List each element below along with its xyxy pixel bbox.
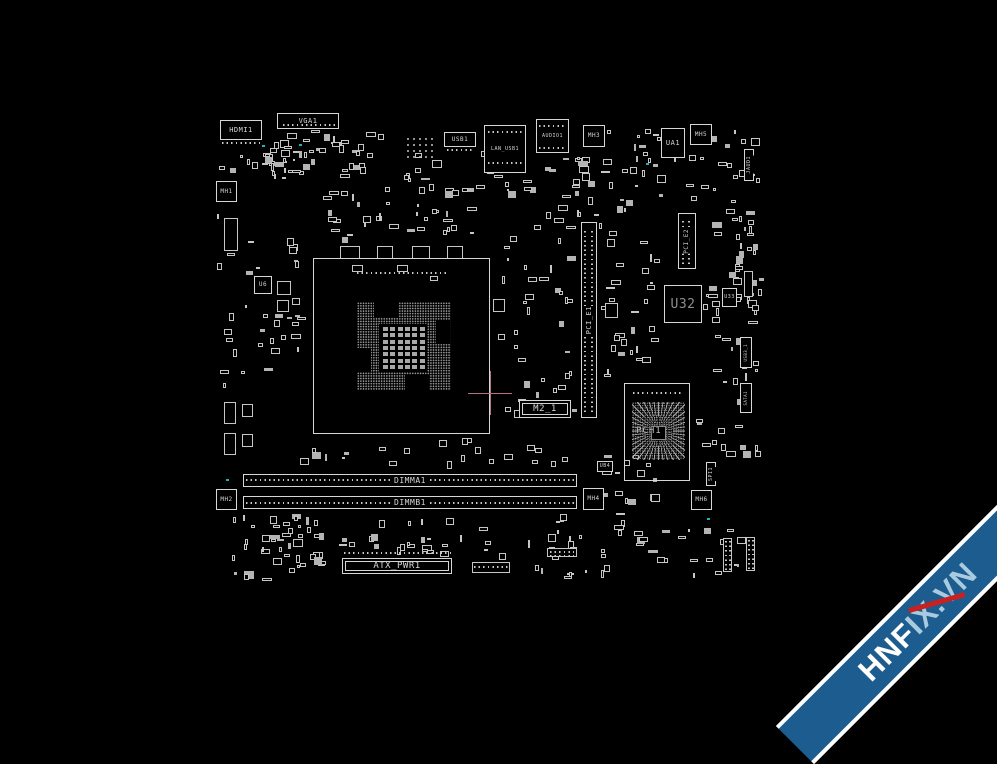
smd-part xyxy=(700,157,704,160)
smd-part xyxy=(244,574,249,580)
cpu-socket-capacitor xyxy=(398,340,403,344)
smd-part xyxy=(331,229,340,232)
smd-part xyxy=(295,261,299,268)
smd-part xyxy=(332,142,340,147)
smd-part xyxy=(252,162,258,169)
net-highlight-marker xyxy=(226,479,229,481)
smd-part xyxy=(447,461,452,469)
smd-part xyxy=(735,266,743,270)
smd-part xyxy=(616,263,624,267)
m2-1-connector: M2_1 xyxy=(519,400,571,418)
smd-part xyxy=(227,253,235,256)
smd-part xyxy=(572,409,577,412)
smd-part xyxy=(284,146,292,149)
pci-e2-slot-label: PCI_E2 xyxy=(682,229,692,254)
smd-part xyxy=(649,326,655,332)
smd-part xyxy=(569,371,572,376)
pin-row xyxy=(539,147,566,149)
smd-part xyxy=(445,191,453,198)
smd-part xyxy=(753,250,756,255)
smd-part xyxy=(312,452,321,459)
smd-part xyxy=(650,254,652,262)
smd-part xyxy=(297,347,299,352)
smd-part xyxy=(277,539,284,541)
smd-part xyxy=(281,150,290,157)
smd-part xyxy=(726,451,736,457)
cpu-socket-capacitor xyxy=(390,340,395,344)
smd-part xyxy=(628,499,636,505)
smd-part xyxy=(303,139,310,142)
mounting-hole-mh4: MH4 xyxy=(583,488,604,510)
cpu-socket-capacitor xyxy=(412,365,417,369)
smd-part xyxy=(579,535,582,539)
pin-row xyxy=(633,392,683,394)
smd-part xyxy=(298,525,301,528)
smd-part xyxy=(559,291,563,295)
smd-part xyxy=(439,440,447,447)
smd-part xyxy=(622,169,628,173)
smd-part xyxy=(572,185,580,188)
smd-part xyxy=(585,570,587,573)
smd-part xyxy=(312,448,316,453)
pin-row xyxy=(729,541,731,570)
pin-row xyxy=(474,566,508,568)
smd-part xyxy=(379,213,381,220)
smd-part xyxy=(371,534,378,541)
smd-part xyxy=(241,371,245,374)
smd-part xyxy=(594,214,599,216)
smd-part xyxy=(553,388,557,393)
smd-part xyxy=(407,542,410,546)
smd-part xyxy=(366,132,376,137)
smd-part xyxy=(704,528,711,534)
cpu-socket-capacitor xyxy=(412,327,417,331)
smd-part xyxy=(607,130,611,134)
smd-part xyxy=(421,178,430,180)
smd-part xyxy=(421,537,425,543)
smd-part xyxy=(579,166,589,173)
smd-part xyxy=(626,200,633,206)
smd-part xyxy=(753,361,759,366)
chip-u33-label: U33 xyxy=(722,295,737,300)
spi1-header: SPI1 xyxy=(706,462,716,486)
smd-part xyxy=(505,182,509,187)
smd-part xyxy=(713,369,722,372)
net-highlight-marker xyxy=(707,518,710,520)
smd-part xyxy=(358,144,364,151)
cpu-socket-capacitor xyxy=(405,346,410,350)
smd-part xyxy=(617,206,623,213)
smd-part xyxy=(514,345,518,349)
smd-part xyxy=(296,555,300,563)
smd-part xyxy=(741,139,746,144)
smd-part xyxy=(518,358,526,362)
smd-part xyxy=(340,174,350,178)
smd-part xyxy=(243,515,245,521)
smd-part xyxy=(297,565,300,568)
component-outline xyxy=(242,434,253,447)
smd-part xyxy=(748,220,754,225)
smd-part xyxy=(731,347,733,351)
smd-part xyxy=(223,383,226,388)
smd-part xyxy=(389,224,399,229)
smd-part xyxy=(565,351,570,353)
smd-part xyxy=(270,516,277,524)
smd-part xyxy=(349,542,355,547)
smd-part xyxy=(408,521,411,526)
smd-part xyxy=(721,444,726,451)
smd-part xyxy=(662,530,670,533)
cpu-socket-capacitor xyxy=(420,365,425,369)
smd-part xyxy=(404,448,410,454)
smd-part xyxy=(461,455,465,462)
smd-part xyxy=(563,158,569,160)
smd-part xyxy=(548,534,556,542)
smd-part xyxy=(755,451,761,457)
smd-part xyxy=(569,536,571,541)
smd-part xyxy=(494,175,503,178)
smd-part xyxy=(642,357,651,363)
smd-part xyxy=(712,222,722,228)
smd-part xyxy=(475,447,481,454)
smd-part xyxy=(524,187,532,191)
smd-part xyxy=(611,280,621,285)
smd-part xyxy=(527,445,535,451)
smd-part xyxy=(733,378,738,385)
cpu-socket-capacitor xyxy=(420,346,425,350)
pin-row xyxy=(748,540,750,569)
smd-part xyxy=(609,231,617,236)
boardview-canvas: HDMI1VGA1USB1LAN_USB1AUDIO1MH1MH2MH3MH4M… xyxy=(0,0,997,696)
smd-part xyxy=(541,378,545,382)
smd-part xyxy=(224,329,232,335)
smd-part xyxy=(536,392,539,398)
smd-part xyxy=(739,216,742,222)
smd-part xyxy=(524,265,527,270)
smd-part xyxy=(389,461,397,466)
smd-part xyxy=(737,537,746,544)
smd-part xyxy=(688,529,690,532)
smd-part xyxy=(549,169,556,172)
smd-part xyxy=(233,349,237,357)
cpu-socket-capacitor xyxy=(405,365,410,369)
pci-e2-slot: PCI_E2 xyxy=(678,213,696,269)
smd-part xyxy=(558,238,561,244)
smd-part xyxy=(328,217,337,222)
smd-part xyxy=(417,227,425,231)
cpu-socket-capacitor xyxy=(390,346,395,350)
cpu-socket-capacitor xyxy=(383,359,388,363)
cpu-socket-capacitor xyxy=(420,327,425,331)
cpu-socket-capacitor xyxy=(383,333,388,337)
smd-part xyxy=(282,177,286,179)
jaud1-header: JAUD1 xyxy=(744,149,754,181)
cpu-socket-capacitor xyxy=(383,327,388,331)
atx-pwr1-connector-label: ATX_PWR1 xyxy=(371,562,422,571)
cpu-socket-capacitor xyxy=(420,359,425,363)
component-outline xyxy=(242,404,253,417)
chip-u6: U6 xyxy=(254,276,272,294)
cpu-socket-capacitor xyxy=(390,333,395,337)
net-highlight-marker xyxy=(646,163,649,165)
smd-part xyxy=(624,208,626,212)
smd-part xyxy=(342,457,345,459)
smd-part xyxy=(504,246,510,249)
smd-part xyxy=(712,317,720,323)
cpu-socket-capacitor xyxy=(383,365,388,369)
cpu-socket-capacitor xyxy=(383,352,388,356)
smd-part xyxy=(244,544,247,550)
usb1-connector-label: USB1 xyxy=(450,137,470,143)
smd-part xyxy=(577,210,579,216)
smd-part xyxy=(726,209,735,214)
smd-part xyxy=(341,140,349,144)
smd-part xyxy=(603,159,612,165)
m2-1-connector-label: M2_1 xyxy=(531,405,559,414)
smd-part xyxy=(273,558,282,565)
smd-part xyxy=(247,159,250,165)
smd-part xyxy=(287,133,297,139)
smd-part xyxy=(363,216,371,223)
cpu-socket-notch xyxy=(357,348,371,372)
smd-part xyxy=(294,516,298,521)
pin-row xyxy=(344,552,452,554)
smd-part xyxy=(609,182,613,189)
smd-part xyxy=(300,458,309,465)
smd-part xyxy=(620,199,624,201)
smd-part xyxy=(230,168,236,173)
chip-u6-label: U6 xyxy=(257,282,269,288)
smd-part xyxy=(634,144,636,151)
smd-part xyxy=(588,197,593,205)
smd-part xyxy=(378,134,384,140)
smd-part xyxy=(446,211,448,217)
smd-part xyxy=(342,237,348,243)
smd-part xyxy=(367,153,373,158)
smd-part xyxy=(360,167,366,174)
smd-part xyxy=(651,338,659,342)
smd-part xyxy=(283,158,286,163)
smd-part xyxy=(534,225,541,230)
usb3-1-header-label: USB3_1 xyxy=(742,344,750,361)
smd-part xyxy=(736,234,740,240)
smd-part xyxy=(635,185,638,187)
pin-row xyxy=(550,555,574,557)
smd-part xyxy=(476,185,485,189)
smd-part xyxy=(479,527,488,531)
smd-part xyxy=(240,155,243,158)
smd-part xyxy=(651,494,660,502)
smd-part xyxy=(524,381,530,388)
smd-part xyxy=(716,308,719,316)
smd-part xyxy=(636,346,638,353)
smd-part xyxy=(498,334,505,340)
cpu-socket-capacitor xyxy=(405,352,410,356)
smd-part xyxy=(631,327,635,334)
pin-row xyxy=(222,142,262,144)
smd-part xyxy=(634,531,643,536)
smd-part xyxy=(508,191,516,198)
smd-part xyxy=(743,451,751,458)
smd-part xyxy=(712,301,720,307)
smd-part xyxy=(727,163,732,168)
smd-part xyxy=(541,568,543,574)
smd-part xyxy=(643,152,648,156)
mounting-hole-mh3-label: MH3 xyxy=(586,133,602,139)
cpu-socket-capacitor xyxy=(390,352,395,356)
smd-part xyxy=(657,557,665,563)
component-outline xyxy=(224,218,238,251)
smd-part xyxy=(615,491,623,496)
smd-part xyxy=(551,461,556,467)
smd-part xyxy=(654,259,660,263)
smd-part xyxy=(715,571,722,575)
cpu-socket-capacitor xyxy=(398,333,403,337)
smd-part xyxy=(356,151,360,156)
smd-part xyxy=(271,163,274,171)
smd-part xyxy=(300,563,306,567)
smd-part xyxy=(735,425,743,428)
smd-part xyxy=(347,234,353,236)
lan-usb1-connector-label: LAN_USB1 xyxy=(489,147,521,152)
smd-part xyxy=(752,305,759,311)
smd-part xyxy=(713,188,716,191)
smd-part xyxy=(706,558,713,562)
smd-part xyxy=(507,258,509,261)
smd-part xyxy=(702,443,711,447)
mounting-hole-mh2: MH2 xyxy=(216,489,237,510)
smd-part xyxy=(565,297,568,304)
smd-part xyxy=(748,321,758,324)
smd-part xyxy=(234,572,237,575)
smd-part xyxy=(609,298,615,302)
smd-part xyxy=(232,555,235,561)
cpu-socket-capacitor xyxy=(412,346,417,350)
smd-part xyxy=(616,513,625,515)
pch-label: PCH1 xyxy=(636,426,682,438)
smd-part xyxy=(265,154,270,157)
cpu-socket-capacitor xyxy=(412,359,417,363)
smd-part xyxy=(314,557,322,565)
usb1-connector: USB1 xyxy=(444,132,476,147)
atx-pwr1-connector: ATX_PWR1 xyxy=(342,558,452,574)
smd-part xyxy=(314,520,318,526)
smd-part xyxy=(650,282,653,284)
mounting-hole-mh1-label: MH1 xyxy=(218,189,234,195)
smd-part xyxy=(523,301,527,304)
component-outline xyxy=(224,402,236,424)
smd-part xyxy=(703,304,708,310)
smd-part xyxy=(725,144,730,148)
smd-part xyxy=(452,190,459,196)
mounting-hole-mh5-label: MH5 xyxy=(693,132,709,138)
smd-part xyxy=(219,166,225,170)
smd-part xyxy=(385,187,390,192)
smd-part xyxy=(246,271,253,275)
smd-part xyxy=(659,194,663,197)
smd-part xyxy=(446,518,454,525)
smd-part xyxy=(569,572,572,577)
smd-part xyxy=(262,578,272,581)
smd-part xyxy=(525,294,534,300)
crosshair-cursor-vertical xyxy=(490,371,491,415)
smd-part xyxy=(271,348,280,354)
smd-part xyxy=(344,452,349,455)
smd-part xyxy=(698,423,702,425)
chip-u32-label: U32 xyxy=(669,298,698,311)
vga1-connector: VGA1 xyxy=(277,113,339,129)
smd-part xyxy=(273,525,280,528)
smd-part xyxy=(374,544,379,549)
pci-e1-slot-label: PCI_E1 xyxy=(584,306,595,334)
smd-part xyxy=(283,522,290,526)
chip-ub4-label: UB4 xyxy=(598,464,613,469)
smd-part xyxy=(271,539,276,542)
smd-part xyxy=(636,156,638,162)
cpu-socket-capacitor xyxy=(405,333,410,337)
net-highlight-marker xyxy=(299,144,302,146)
smd-part xyxy=(693,573,695,578)
smd-part xyxy=(289,568,295,573)
cpu-socket-capacitor xyxy=(412,352,417,356)
smd-part xyxy=(342,169,348,172)
pin-row xyxy=(550,551,574,553)
smd-part xyxy=(432,160,442,168)
smd-part xyxy=(272,171,275,176)
smd-part xyxy=(727,529,734,532)
smd-part xyxy=(614,525,624,530)
smd-part xyxy=(386,202,390,205)
smd-part xyxy=(319,533,324,540)
smd-part xyxy=(279,547,282,552)
pin-row xyxy=(725,541,727,570)
smd-part xyxy=(558,205,568,211)
smd-part xyxy=(416,212,418,216)
smd-part xyxy=(260,329,265,332)
smd-part xyxy=(287,238,294,246)
smd-part xyxy=(293,159,295,161)
smd-part xyxy=(618,530,622,536)
jaud1-header-label: JAUD1 xyxy=(745,156,754,174)
smd-part xyxy=(470,232,474,234)
sata1-header-label: SATA1 xyxy=(742,391,750,406)
cpu-socket-capacitor xyxy=(405,327,410,331)
smd-part xyxy=(739,251,744,258)
smd-part xyxy=(460,535,462,542)
smd-part xyxy=(647,285,655,290)
cpu-socket-capacitor xyxy=(383,346,388,350)
smd-part xyxy=(567,256,576,261)
smd-part xyxy=(528,540,530,548)
smd-part xyxy=(546,212,551,219)
smd-part xyxy=(226,338,233,342)
cpu-socket-capacitor xyxy=(412,333,417,337)
smd-part xyxy=(747,247,752,251)
smd-part xyxy=(467,207,477,211)
smd-part xyxy=(443,219,453,222)
smd-part xyxy=(723,381,727,383)
smd-part xyxy=(715,335,721,338)
smd-part xyxy=(562,457,568,462)
smd-part xyxy=(357,202,360,207)
smd-part xyxy=(284,168,286,173)
smd-part xyxy=(309,150,314,153)
smd-part xyxy=(421,519,423,525)
smd-part xyxy=(400,544,405,551)
pin-row xyxy=(752,540,754,569)
smd-part xyxy=(737,564,739,567)
smd-part xyxy=(731,200,736,203)
